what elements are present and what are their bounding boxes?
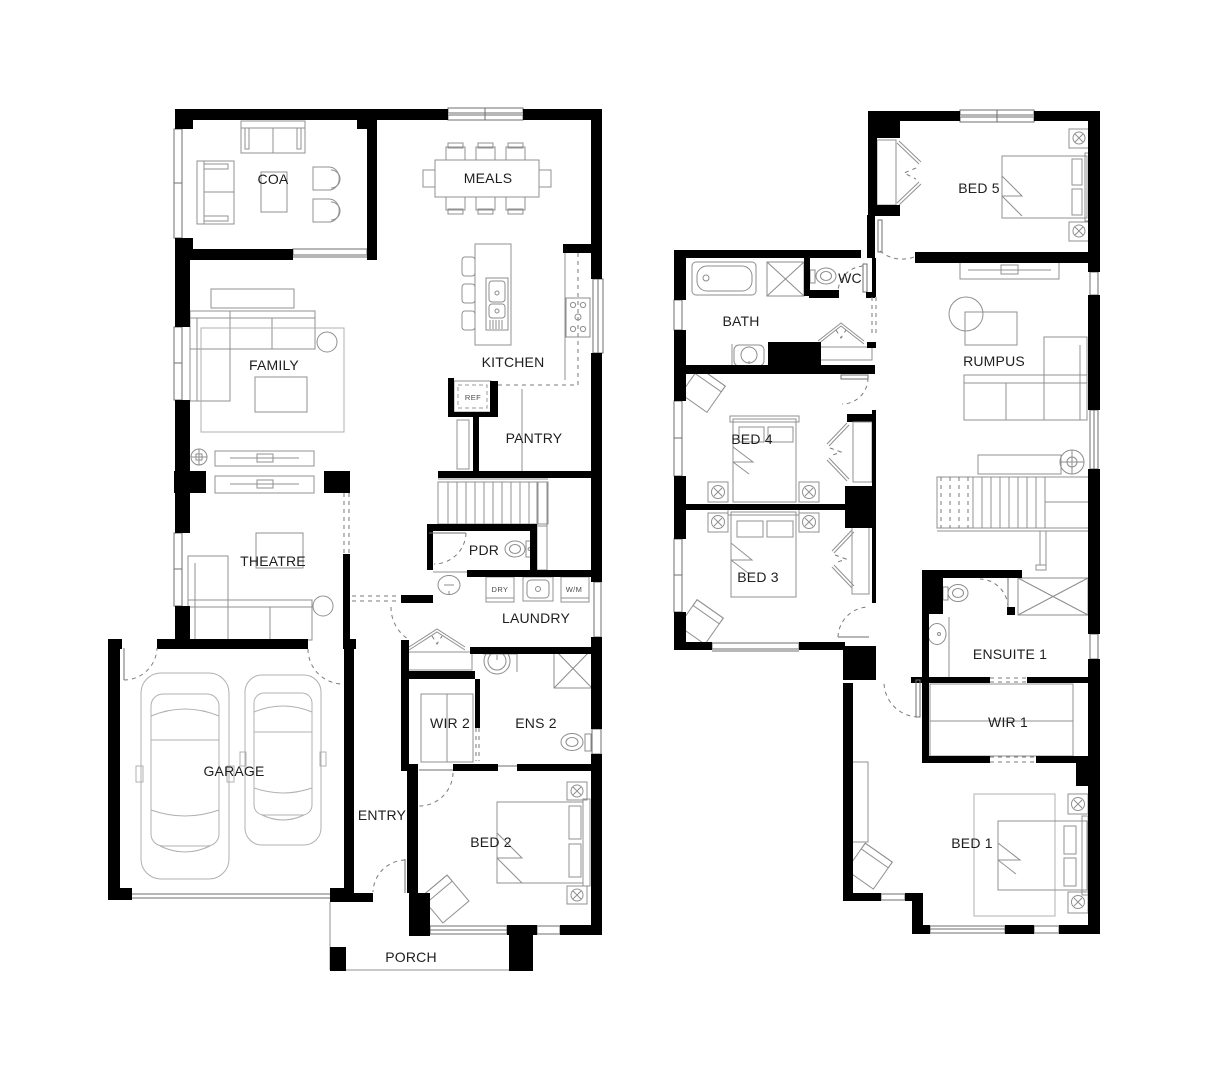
svg-text:BED 3: BED 3 bbox=[737, 569, 778, 585]
svg-text:KITCHEN: KITCHEN bbox=[482, 354, 545, 370]
svg-text:ENS 2: ENS 2 bbox=[515, 715, 556, 731]
svg-text:BED 5: BED 5 bbox=[958, 180, 999, 196]
svg-text:W/M: W/M bbox=[566, 585, 583, 594]
svg-text:LAUNDRY: LAUNDRY bbox=[502, 610, 571, 626]
svg-text:ENTRY: ENTRY bbox=[358, 807, 407, 823]
svg-text:GARAGE: GARAGE bbox=[203, 763, 264, 779]
svg-text:ENSUITE 1: ENSUITE 1 bbox=[973, 646, 1047, 662]
svg-text:BATH: BATH bbox=[722, 313, 759, 329]
svg-text:MEALS: MEALS bbox=[464, 170, 512, 186]
svg-text:WIR 2: WIR 2 bbox=[430, 715, 470, 731]
svg-text:FAMILY: FAMILY bbox=[249, 357, 299, 373]
svg-text:PORCH: PORCH bbox=[385, 949, 437, 965]
svg-text:THEATRE: THEATRE bbox=[240, 553, 306, 569]
svg-text:RUMPUS: RUMPUS bbox=[963, 353, 1025, 369]
svg-text:BED 1: BED 1 bbox=[951, 835, 992, 851]
svg-text:WIR 1: WIR 1 bbox=[988, 714, 1028, 730]
svg-text:WC: WC bbox=[838, 270, 862, 286]
svg-text:PANTRY: PANTRY bbox=[506, 430, 563, 446]
svg-text:BED 2: BED 2 bbox=[470, 834, 511, 850]
svg-text:PDR: PDR bbox=[469, 542, 499, 558]
svg-text:BED 4: BED 4 bbox=[731, 431, 772, 447]
svg-text:REF: REF bbox=[465, 393, 481, 402]
svg-text:COA: COA bbox=[258, 171, 289, 187]
svg-text:DRY: DRY bbox=[492, 585, 509, 594]
